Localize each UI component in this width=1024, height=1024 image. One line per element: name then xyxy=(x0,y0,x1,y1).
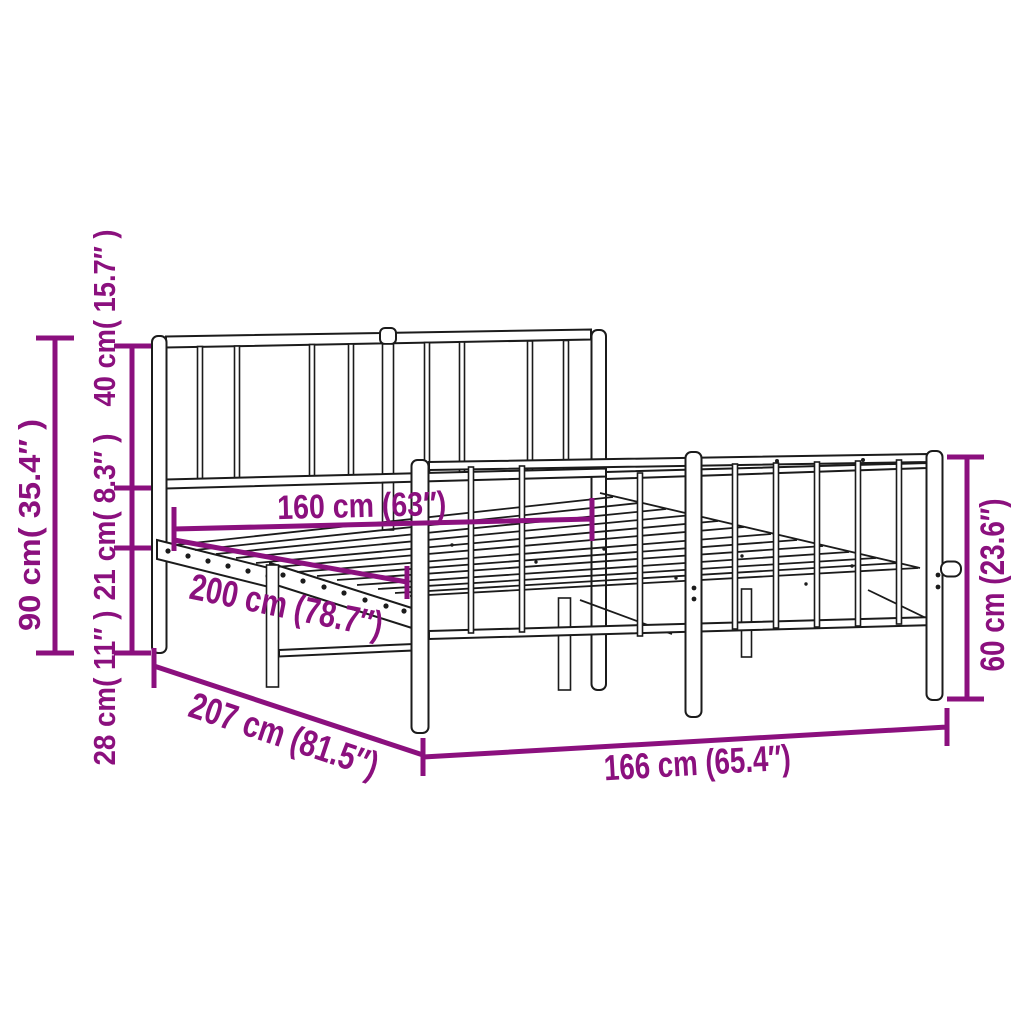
headboard-slat xyxy=(310,345,315,478)
footboard-baluster xyxy=(774,463,779,628)
headboard-slat xyxy=(564,341,569,472)
diagram-page: 90 cm( 35.4″ ) 40 cm( 15.7″ ) 21 cm( 8.3… xyxy=(0,0,1024,1024)
footboard-baluster xyxy=(469,467,474,633)
dim-label-headboard-upper: 40 cm( 15.7″ ) xyxy=(87,230,122,407)
dim-label-deck-floor: 28 cm( 11″ ) xyxy=(87,611,122,766)
footboard-baluster xyxy=(733,464,738,629)
footboard-baluster xyxy=(815,462,820,627)
dim-label-outer-length: 207 cm (81.5″) xyxy=(184,684,384,785)
headboard-slat xyxy=(528,341,533,472)
support-leg xyxy=(559,598,571,690)
deck-far-edge xyxy=(600,493,920,568)
footboard-baluster xyxy=(856,461,861,626)
side-rail-stub xyxy=(941,562,961,577)
footboard-baluster xyxy=(520,466,525,632)
dim-label-total-height: 90 cm( 35.4″ ) xyxy=(12,419,47,631)
floor-stretcher-bar xyxy=(279,644,413,657)
bed-frame-dimension-diagram: 90 cm( 35.4″ ) 40 cm( 15.7″ ) 21 cm( 8.3… xyxy=(0,0,1024,1024)
footboard-mid-post xyxy=(686,452,702,717)
footboard-baluster xyxy=(638,473,643,636)
dim-label-rail-to-deck: 21 cm( 8.3″ ) xyxy=(87,434,122,601)
dim-label-footboard-height: 60 cm (23.6″) xyxy=(974,499,1012,672)
headboard-slat xyxy=(235,346,240,480)
dim-label-inner-width: 160 cm (63″) xyxy=(277,485,447,527)
headboard-slat xyxy=(425,343,430,476)
headboard-near-post xyxy=(152,336,167,653)
footboard-baluster xyxy=(897,460,902,624)
headboard-slat xyxy=(349,344,354,477)
headboard-slat xyxy=(460,342,465,474)
headboard-slat xyxy=(198,347,203,481)
headboard-mid-post-cap xyxy=(380,328,396,344)
